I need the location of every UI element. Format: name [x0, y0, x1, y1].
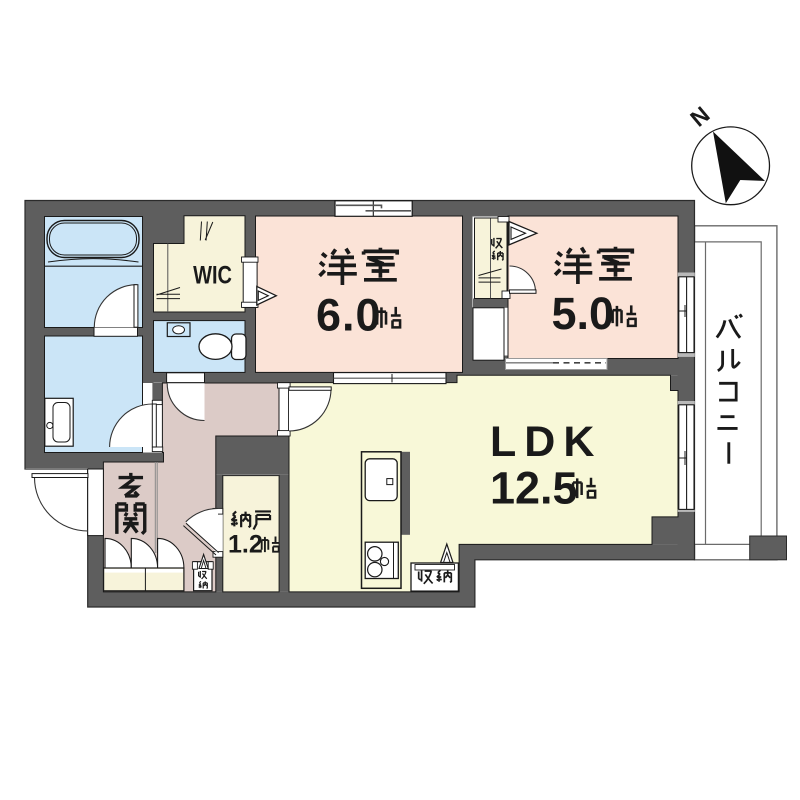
svg-text:6.0: 6.0 [316, 290, 382, 341]
svg-text:1.2: 1.2 [228, 531, 263, 559]
svg-text:WIC: WIC [193, 261, 232, 289]
svg-text:5.0: 5.0 [552, 288, 615, 339]
svg-text:12.5: 12.5 [490, 463, 578, 514]
svg-text:LDK: LDK [490, 418, 602, 466]
